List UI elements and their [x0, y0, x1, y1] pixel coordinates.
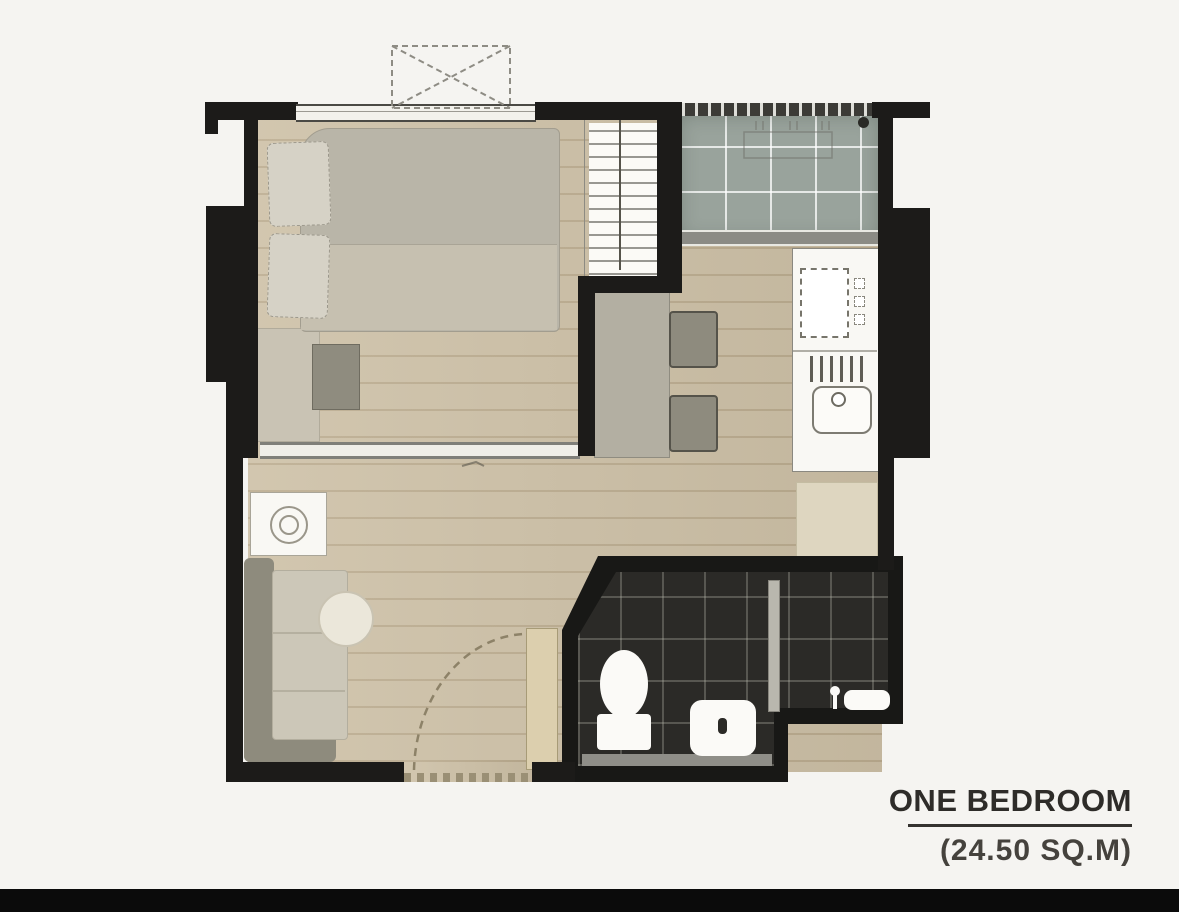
wall-door-stub: [532, 762, 575, 782]
stove-knob: [854, 296, 865, 307]
wardrobe: [584, 116, 667, 288]
balcony-sliding-door: [680, 230, 878, 246]
wall-left-mid: [226, 382, 258, 458]
dresser: [256, 328, 320, 442]
stove: [800, 268, 849, 338]
plan-area: (24.50 SQ.M): [889, 834, 1132, 868]
washing-machine-drum-inner-icon: [279, 515, 299, 535]
wall-top-left-stub: [205, 102, 218, 134]
bench: [312, 344, 360, 410]
vanity-drain-icon: [718, 718, 727, 734]
wardrobe-rod: [619, 120, 621, 270]
stove-knob: [854, 278, 865, 289]
entry-door-leaf: [526, 628, 558, 770]
balcony-drain-icon: [858, 117, 869, 128]
round-table: [318, 591, 374, 647]
ac-condenser-icon: [392, 46, 510, 108]
sofa-cushion-line: [273, 690, 345, 692]
bedroom-window: [296, 104, 536, 122]
wall-bedroom-divider: [578, 276, 595, 456]
stool: [669, 395, 718, 452]
drainboard: [810, 356, 868, 382]
balcony-railing: [682, 103, 872, 116]
toilet-tank: [597, 714, 651, 750]
shower-head-stem-icon: [833, 695, 837, 709]
entry-threshold: [404, 773, 532, 782]
wall-right-upper: [878, 116, 893, 208]
title-underline: [908, 824, 1132, 827]
bottom-letterbox-bar: [0, 889, 1179, 912]
wall-bottom-left: [226, 762, 404, 782]
stove-knob: [854, 314, 865, 325]
shower-glass-partition: [768, 580, 780, 712]
pillow: [267, 233, 331, 319]
pillow: [267, 141, 332, 227]
plan-title: ONE BEDROOM: [889, 783, 1132, 819]
bedroom-sliding-partition: [260, 442, 580, 459]
counter-divider: [793, 350, 877, 352]
toilet-bowl: [600, 650, 648, 718]
wall-left-lower: [226, 458, 243, 778]
wall-right-lower: [878, 458, 894, 570]
window-glass-line: [296, 111, 536, 112]
balcony-floor: [680, 116, 878, 238]
wall-right-thick: [878, 208, 930, 458]
wall-left-upper: [244, 116, 258, 206]
wall-under-wardrobe: [583, 276, 682, 293]
bed-sheet: [301, 244, 557, 330]
wall-wardrobe-right: [657, 102, 682, 293]
wall-left-thick: [206, 206, 258, 382]
stool: [669, 311, 718, 368]
floorplan-page: { "labels": { "title": "ONE BEDROOM", "a…: [0, 0, 1179, 912]
kitchen-mat: [796, 482, 878, 566]
dining-counter: [594, 290, 670, 458]
shower-shelf: [844, 690, 890, 710]
title-block: ONE BEDROOM (24.50 SQ.M): [889, 783, 1132, 868]
faucet-icon: [831, 392, 846, 407]
